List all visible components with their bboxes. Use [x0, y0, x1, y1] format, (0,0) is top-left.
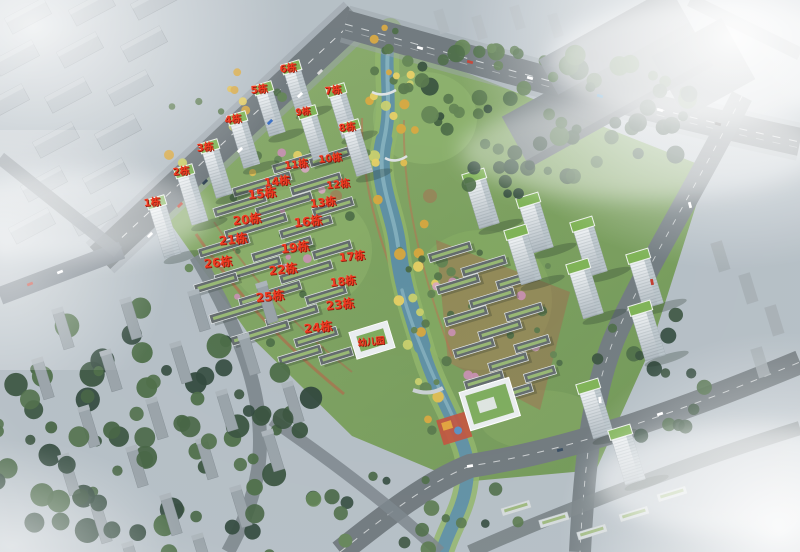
scene-svg: [0, 0, 800, 552]
fog-overlay: [0, 0, 800, 552]
aerial-rendering: 1栋2栋3栋4栋5栋6栋7栋8栋9栋10栋11栋12栋13栋14栋15栋16栋1…: [0, 0, 800, 552]
